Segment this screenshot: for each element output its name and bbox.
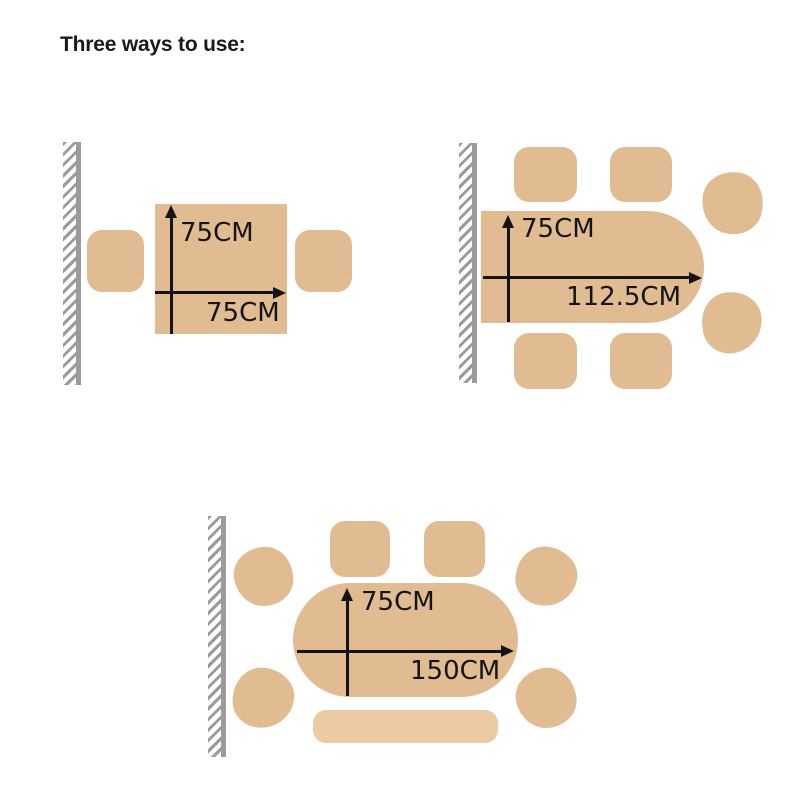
height-dimension-arrow	[346, 599, 349, 696]
chair-round-right-bottom	[698, 288, 766, 357]
wall-hatch	[459, 143, 477, 383]
chair-bottom-2	[610, 333, 672, 389]
height-dimension-label: 75CM	[361, 589, 435, 615]
wall-hatch	[208, 516, 226, 757]
bench	[313, 710, 498, 743]
chair-left	[87, 230, 144, 292]
usage-diagram-canvas: Three ways to use: 75CM 75CM 75CM 112.5C…	[0, 0, 790, 790]
chair-top-1	[514, 147, 577, 202]
width-dimension-label: 75CM	[206, 300, 280, 326]
chair-top-2	[610, 147, 672, 202]
chair-right	[295, 230, 352, 292]
width-dimension-label: 112.5CM	[566, 284, 681, 310]
chair-round-left-bottom	[229, 664, 298, 732]
wall-hatch	[63, 142, 81, 385]
chair-top-1	[330, 521, 390, 577]
width-dimension-arrow	[483, 276, 689, 279]
chair-bottom-1	[514, 333, 577, 389]
height-dimension-label: 75CM	[180, 220, 254, 246]
height-dimension-arrow	[507, 226, 510, 322]
chair-round-right-top	[697, 167, 768, 239]
width-arrow-head-icon	[689, 272, 702, 284]
width-dimension-arrow	[155, 291, 273, 294]
chair-top-2	[424, 521, 485, 577]
chair-round-right-top	[511, 541, 583, 611]
page-title: Three ways to use:	[60, 33, 245, 57]
width-dimension-arrow	[297, 650, 501, 653]
width-dimension-label: 150CM	[410, 658, 500, 684]
chair-round-right-bottom	[511, 663, 581, 733]
height-dimension-label: 75CM	[521, 216, 595, 242]
chair-round-left-top	[231, 544, 296, 609]
width-arrow-head-icon	[501, 645, 514, 657]
height-dimension-arrow	[170, 216, 173, 334]
